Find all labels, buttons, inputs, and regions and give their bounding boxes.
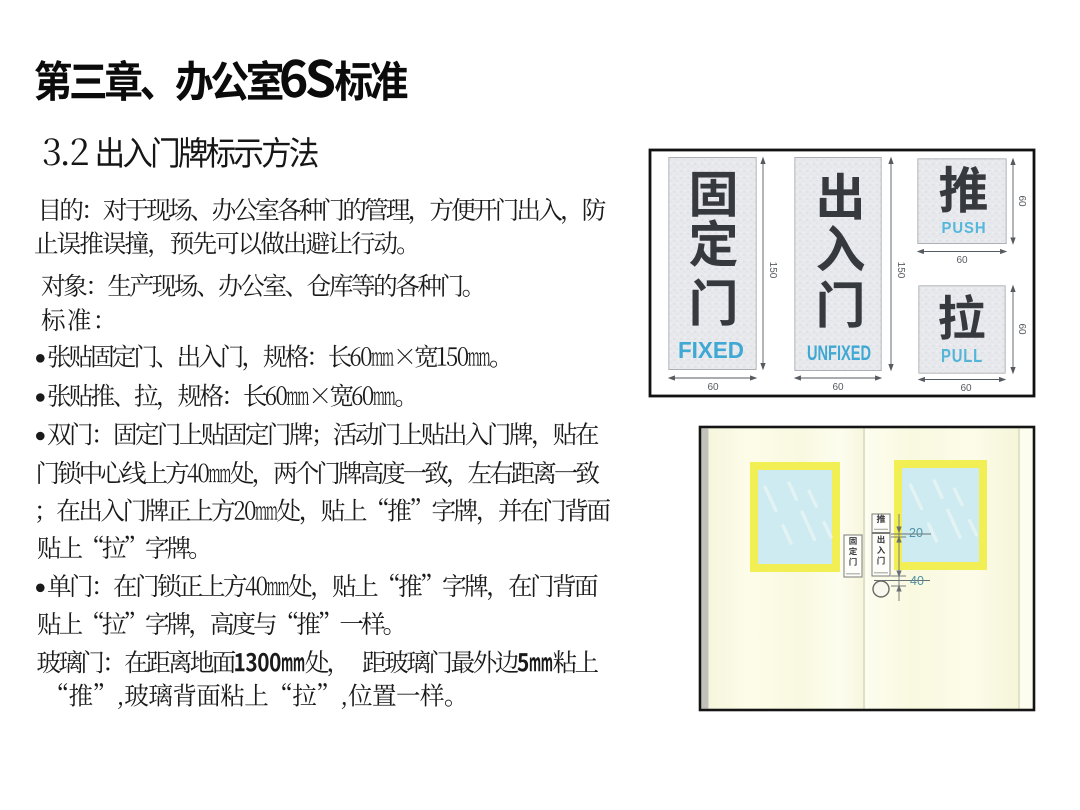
svg-text:PULL: PULL bbox=[941, 346, 983, 366]
svg-text:60: 60 bbox=[832, 382, 844, 393]
svg-text:60: 60 bbox=[960, 383, 972, 394]
svg-text:60: 60 bbox=[956, 255, 968, 266]
svg-text:FIXED: FIXED bbox=[678, 337, 744, 363]
svg-text:150: 150 bbox=[767, 262, 778, 279]
svg-text:60: 60 bbox=[1016, 195, 1027, 207]
svg-text:60: 60 bbox=[707, 382, 719, 393]
svg-text:20: 20 bbox=[909, 526, 923, 540]
svg-text:150: 150 bbox=[895, 262, 906, 279]
svg-text:PUSH: PUSH bbox=[942, 220, 987, 237]
svg-text:40: 40 bbox=[910, 574, 924, 588]
svg-text:UNFIXED: UNFIXED bbox=[807, 342, 871, 365]
svg-text:60: 60 bbox=[1016, 323, 1027, 335]
